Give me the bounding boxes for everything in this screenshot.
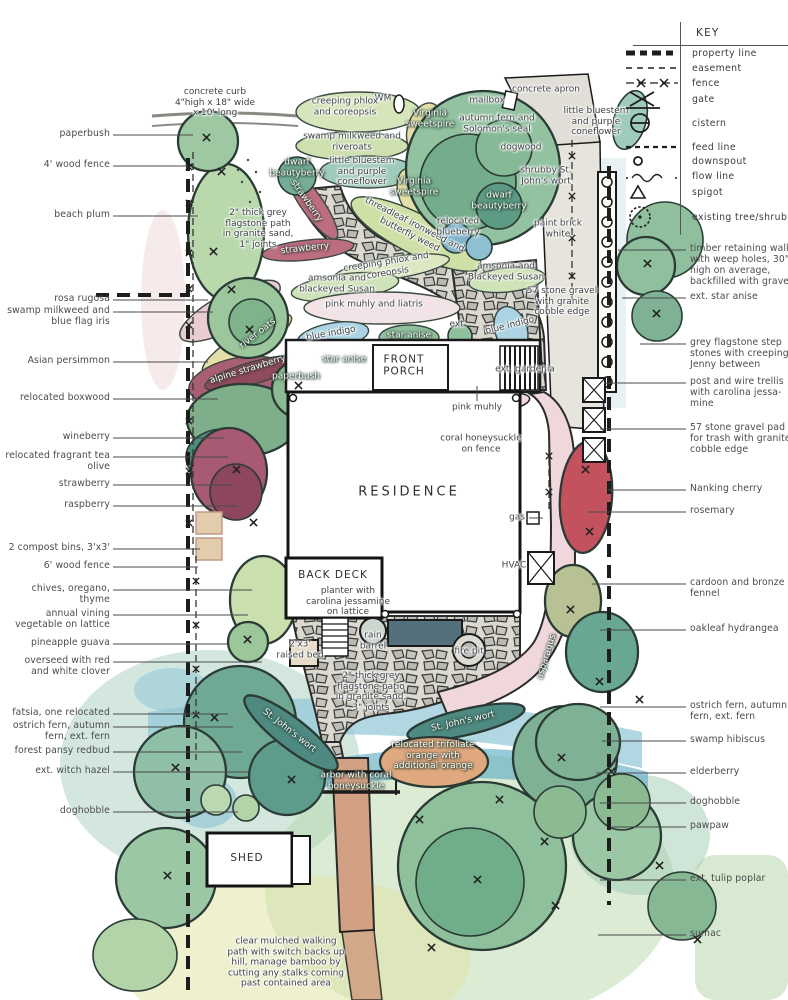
callout-left: 2 compost bins, 3'x3' — [0, 542, 110, 553]
callout-right: ostrich fern, autumn fern, ext. fern — [690, 700, 788, 722]
plan-label: planter with carolina jessamine on latti… — [306, 586, 390, 618]
landscape-plan-page: { "colors":{"ink":"#1d1d1d","label_gray"… — [0, 0, 788, 1000]
key-item-label: spigot — [692, 187, 723, 198]
plan-label: rain barrel — [360, 630, 386, 651]
plan-label: RESIDENCE — [358, 484, 460, 499]
callout-right: 57 stone gravel pad for trash with grani… — [690, 422, 788, 455]
callout-left: forest pansy redbud — [0, 745, 110, 756]
callout-left: swamp milkweed and blue flag iris — [0, 305, 110, 327]
compost-bin — [196, 512, 222, 534]
plan-label: coral honeysuckle on fence — [440, 433, 521, 454]
plan-label: ext. gardenia — [495, 365, 555, 376]
plan-label: FRONT PORCH — [383, 354, 425, 379]
callout-left: chives, oregano, thyme — [0, 583, 110, 605]
callout-left: relocated boxwood — [0, 392, 110, 403]
plan-label: star anise — [387, 331, 431, 342]
spigot-icon — [620, 182, 684, 202]
gas-meter — [527, 512, 539, 524]
plan-label: pink muhly — [452, 403, 502, 414]
plan-label: star anise — [322, 355, 366, 366]
plan-label: 2'x3' raised bed — [276, 639, 323, 660]
key-item-gate: gate — [620, 89, 788, 109]
plan-label: HVAC — [502, 561, 527, 572]
callout-left: doghobble — [0, 805, 110, 816]
callout-left: rosa rugosa — [0, 293, 110, 304]
plan-label: BACK DECK — [298, 569, 368, 581]
callout-right: ext. tulip poplar — [690, 873, 788, 884]
plan-label: relocated trifoliate orange with additio… — [391, 740, 474, 772]
key-panel: KEY property lineeasementfencegatecister… — [0, 0, 788, 240]
deck-planter — [388, 620, 462, 646]
callout-right: swamp hibiscus — [690, 734, 788, 745]
callout-right: cardoon and bronze fennel — [690, 577, 788, 599]
callout-left: ostrich fern, autumn fern, ext. fern — [0, 720, 110, 742]
callout-left: overseed with red and white clover — [0, 655, 110, 677]
callout-right: oakleaf hydrangea — [690, 623, 788, 634]
plan-label: 2" thick grey flagstone patio in granite… — [336, 671, 407, 713]
doghobble-shrubs — [201, 785, 231, 815]
plan-label: clear mulched walking path with switch b… — [227, 936, 344, 989]
pawpaw — [534, 786, 586, 838]
callout-right: grey flagstone step stones with creeping… — [690, 337, 788, 370]
key-item-existing-tree-shrub: existing tree/shrub — [620, 207, 788, 227]
callout-right: elderberry — [690, 766, 788, 777]
existing-tree-shrub-icon — [620, 204, 684, 230]
callout-right: doghobble — [690, 796, 788, 807]
key-item-label: gate — [692, 94, 715, 105]
key-item-label: fence — [692, 78, 720, 89]
callout-left: fatsia, one relocated — [0, 707, 110, 718]
callout-right: Nanking cherry — [690, 483, 788, 494]
key-item-label: existing tree/shrub — [692, 212, 787, 223]
cistern-icon — [620, 111, 684, 135]
callout-right: sumac — [690, 928, 788, 939]
plan-label: pink muhly and liatris — [325, 300, 423, 311]
callout-left: pineapple guava — [0, 637, 110, 648]
callout-right: ext. star anise — [690, 291, 788, 302]
plan-label: arbor with coral honeysuckle — [320, 770, 391, 791]
pineapple-guava — [228, 622, 268, 662]
plan-label: amsonia and blackeyed Susan — [299, 273, 375, 294]
key-item-label: flow line — [692, 171, 734, 182]
callout-left: relocated fragrant tea olive — [0, 450, 110, 472]
key-item-cistern: cistern — [620, 113, 788, 133]
callout-right: rosemary — [690, 505, 788, 516]
key-item-label: easement — [692, 63, 742, 74]
gate-icon — [620, 88, 684, 110]
callout-right: post and wire trellis with carolina jess… — [690, 376, 788, 409]
callout-right: pawpaw — [690, 820, 788, 831]
key-item-label: cistern — [692, 118, 726, 129]
plan-label: gas — [509, 513, 525, 524]
callout-left: raspberry — [0, 499, 110, 510]
callout-left: annual vining vegetable on lattice — [0, 608, 110, 630]
key-item-label: downspout — [692, 156, 747, 167]
callout-left: ext. witch hazel — [0, 765, 110, 776]
callout-left: 6' wood fence — [0, 560, 110, 571]
callout-left: wineberry — [0, 431, 110, 442]
plan-label: fire pit — [454, 647, 483, 658]
plan-label: ext. — [449, 320, 466, 331]
key-item-label: property line — [692, 48, 757, 59]
plan-label: amsonia and Blackeyed Susan — [468, 261, 544, 282]
compost-bin — [196, 538, 222, 560]
callout-right: timber retaining wall with weep holes, 3… — [690, 243, 788, 288]
plan-label: SHED — [230, 852, 263, 864]
key-title: KEY — [696, 27, 720, 39]
callout-left: strawberry — [0, 478, 110, 489]
callout-left: Asian persimmon — [0, 355, 110, 366]
key-item-spigot: spigot — [620, 182, 788, 202]
plan-label: 57 stone gravel with granite cobble edge — [527, 286, 597, 318]
plan-label: paperbush — [272, 372, 320, 383]
